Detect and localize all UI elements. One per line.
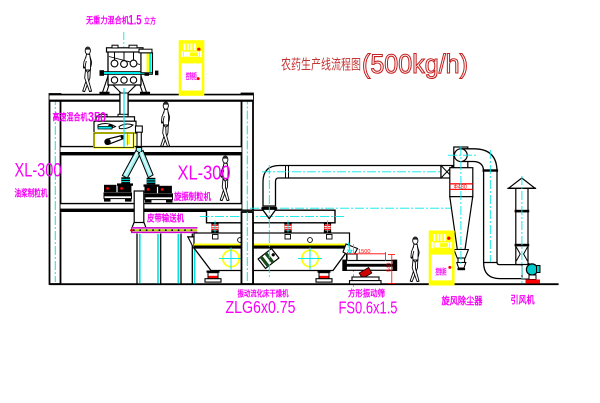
svg-text:农药生产线流程图: 农药生产线流程图 — [281, 57, 361, 73]
svg-text:1500: 1500 — [358, 249, 370, 255]
svg-text:350: 350 — [88, 109, 106, 125]
svg-text:(500kg/h): (500kg/h) — [362, 49, 468, 79]
svg-text:引风机: 引风机 — [511, 294, 535, 307]
svg-text:1.5: 1.5 — [129, 12, 142, 28]
svg-text:XL-300: XL-300 — [15, 161, 62, 182]
svg-text:旋振制粒机: 旋振制粒机 — [173, 191, 211, 203]
svg-text:油桨制粒机: 油桨制粒机 — [15, 188, 48, 200]
svg-text:FS0.6x1.5: FS0.6x1.5 — [339, 298, 398, 318]
svg-text:控制柜: 控制柜 — [186, 71, 197, 81]
svg-text:ZLG6x0.75: ZLG6x0.75 — [226, 297, 296, 317]
svg-text:皮带输送机: 皮带输送机 — [146, 213, 184, 225]
svg-text:无重力混合机: 无重力混合机 — [85, 15, 129, 26]
svg-text:立方: 立方 — [144, 16, 156, 26]
svg-text:旋风除尘器: 旋风除尘器 — [441, 295, 484, 308]
svg-text:540: 540 — [387, 263, 393, 272]
svg-text:高速混合机: 高速混合机 — [53, 112, 88, 124]
svg-text:XL-300: XL-300 — [178, 163, 231, 185]
svg-text:控制柜: 控制柜 — [436, 267, 447, 277]
